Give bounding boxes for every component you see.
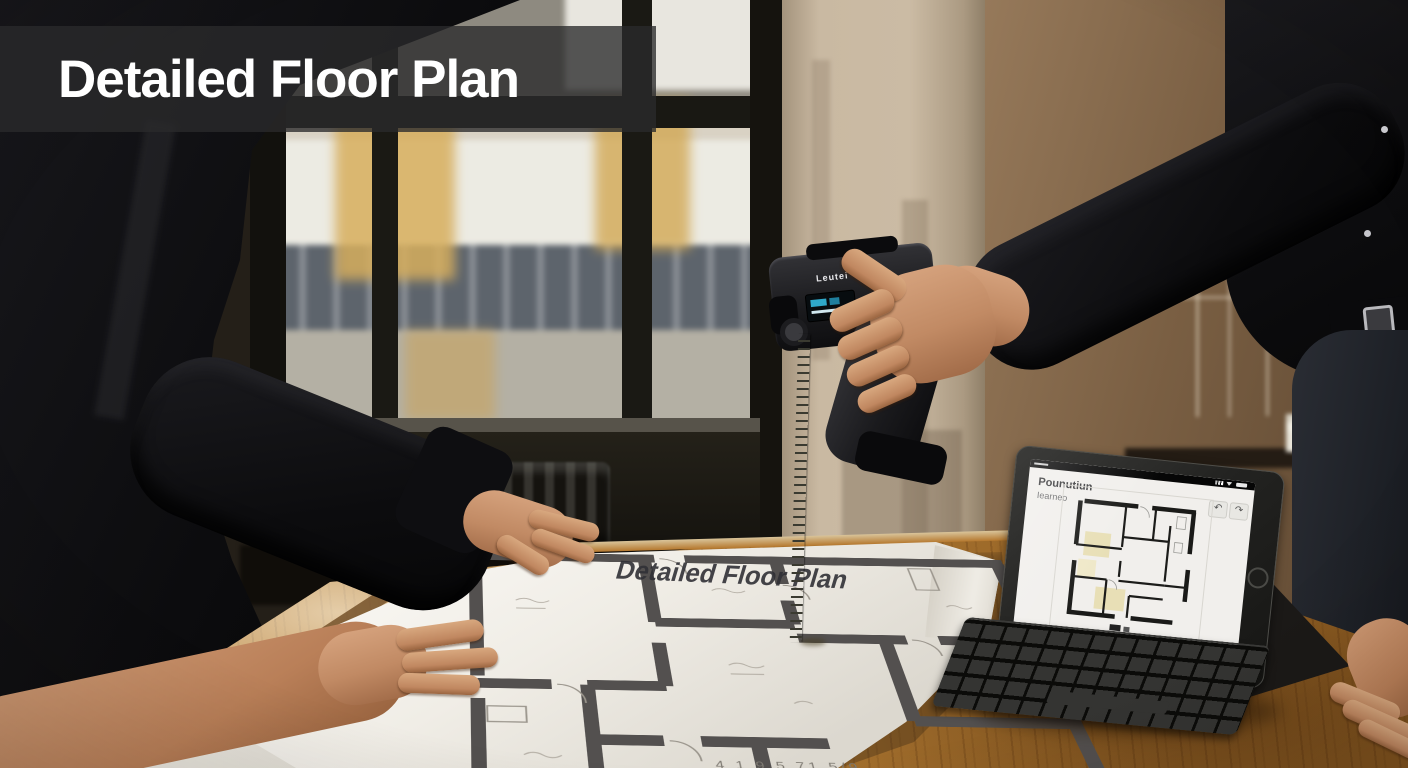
photo-scene: 4 1 9.5 71 5/9 9L 1999 Detailed Floor Pl… (0, 0, 1408, 768)
home-button (1246, 566, 1269, 589)
finger (398, 673, 481, 696)
title-banner: Detailed Floor Plan (0, 26, 656, 132)
shirt-button (1381, 126, 1388, 133)
tape-shadow (800, 638, 826, 646)
shirt-button (1364, 230, 1371, 237)
plan-dimension-note: 4 1 9.5 71 5/9 (714, 759, 863, 768)
banner-title: Detailed Floor Plan (0, 49, 519, 110)
